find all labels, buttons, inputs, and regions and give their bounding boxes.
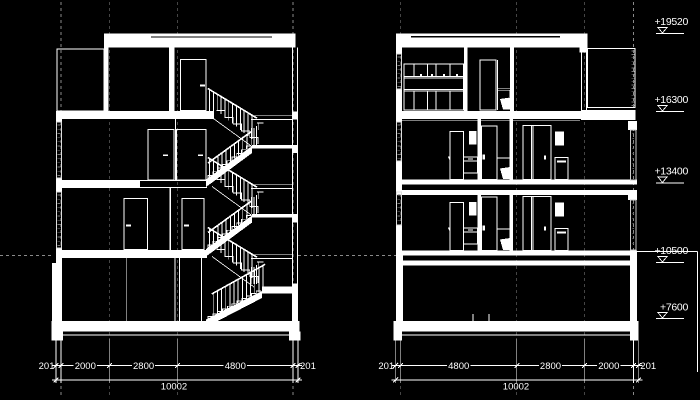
svg-text:201: 201 — [640, 361, 656, 372]
svg-text:201: 201 — [378, 361, 394, 372]
svg-text:+10500: +10500 — [654, 245, 688, 257]
svg-text:10002: 10002 — [503, 382, 529, 393]
svg-text:2000: 2000 — [598, 361, 619, 372]
svg-text:+16300: +16300 — [654, 94, 688, 106]
svg-text:+19520: +19520 — [654, 16, 688, 28]
svg-text:2800: 2800 — [133, 361, 154, 372]
svg-text:+7600: +7600 — [660, 302, 688, 314]
svg-text:2000: 2000 — [75, 361, 96, 372]
svg-text:201: 201 — [300, 361, 316, 372]
svg-text:4800: 4800 — [225, 361, 246, 372]
svg-text:4800: 4800 — [448, 361, 469, 372]
svg-text:+13400: +13400 — [654, 166, 688, 178]
svg-text:201: 201 — [39, 361, 55, 372]
svg-text:10002: 10002 — [161, 382, 187, 393]
svg-text:2800: 2800 — [540, 361, 561, 372]
